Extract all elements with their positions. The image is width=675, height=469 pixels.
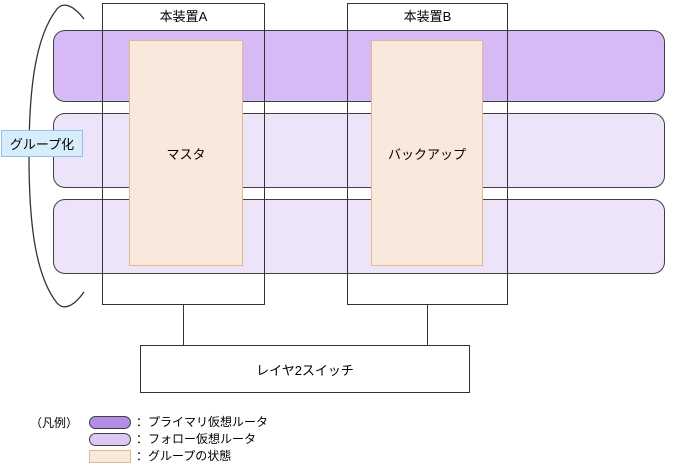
group-state-swatch xyxy=(89,450,131,463)
legend-label-follow: ：フォロー仮想ルータ xyxy=(136,431,256,447)
grouping-brace xyxy=(10,0,95,315)
device-box-a: 本装置A xyxy=(102,3,265,305)
group-label: グループ化 xyxy=(1,130,83,157)
layer2-switch-box: レイヤ2スイッチ xyxy=(140,345,470,393)
layer2-switch-label: レイヤ2スイッチ xyxy=(256,360,354,379)
legend-item-primary: ：プライマリ仮想ルータ xyxy=(89,414,268,430)
legend-label-primary: ：プライマリ仮想ルータ xyxy=(136,414,268,430)
follow-virtual-router-swatch xyxy=(89,433,131,446)
group-label-text: グループ化 xyxy=(10,134,74,153)
legend-item-group-state: ：グループの状態 xyxy=(89,448,231,464)
device-title-b: 本装置B xyxy=(348,4,507,30)
device-box-b: 本装置B xyxy=(347,3,508,305)
vrrp-grouping-diagram: プライマリ仮想ルータ フォロー仮想ルータ1 フォロー仮想ルータ2 マスタ バック… xyxy=(0,0,675,469)
device-title-a: 本装置A xyxy=(103,4,264,30)
connector-device-b-switch xyxy=(427,305,428,345)
connector-device-a-switch xyxy=(183,305,184,345)
legend-title: （凡例） xyxy=(30,415,78,431)
legend: （凡例） ：プライマリ仮想ルータ ：フォロー仮想ルータ ：グループの状態 xyxy=(0,408,400,468)
legend-item-follow: ：フォロー仮想ルータ xyxy=(89,431,256,447)
legend-label-group-state: ：グループの状態 xyxy=(136,448,231,464)
primary-virtual-router-swatch xyxy=(89,416,131,429)
